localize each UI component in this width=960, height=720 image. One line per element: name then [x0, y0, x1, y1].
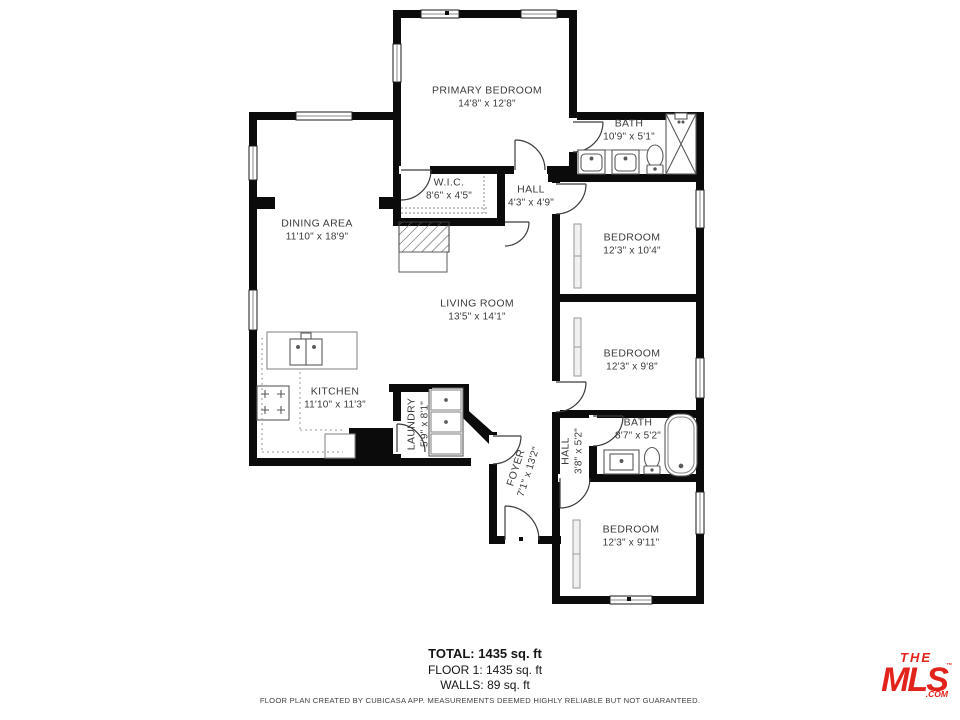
- bathtub-icon: [665, 414, 697, 476]
- room-label-bedroom-3: BEDROOM 12'3" x 9'11": [603, 524, 660, 551]
- total-area: TOTAL: 1435 sq. ft: [428, 646, 542, 663]
- room-dims: 8'6" x 4'5": [426, 191, 472, 204]
- trademark-symbol: ™: [946, 663, 952, 669]
- room-label-living-room: LIVING ROOM 13'5" x 14'1": [440, 298, 514, 325]
- room-name: DINING AREA: [281, 218, 353, 231]
- toilet-icon: [644, 448, 660, 475]
- room-label-bath-1: BATH 10'9" x 5'1": [603, 118, 655, 145]
- room-name: BATH: [615, 417, 661, 430]
- logo-mls-text: MLS ™: [874, 663, 954, 697]
- counter: [325, 434, 355, 458]
- room-name: BEDROOM: [603, 524, 660, 537]
- shower-icon: [666, 113, 696, 174]
- room-dims: 4'3" x 4'9": [508, 198, 554, 211]
- room-name: HALL: [508, 184, 554, 197]
- room-label-bath-2: BATH 8'7" x 5'2": [615, 417, 661, 444]
- sliding-closet-door-icon: [574, 224, 581, 288]
- door-arc: [505, 506, 539, 540]
- room-name: LIVING ROOM: [440, 298, 514, 311]
- room-label-wic: W.I.C. 8'6" x 4'5": [426, 177, 472, 204]
- laundry-fixtures: [429, 388, 463, 456]
- room-name: HALL: [560, 428, 573, 474]
- room-dims: 12'3" x 9'11": [603, 538, 660, 551]
- room-dims: 5'9" x 8'1": [420, 398, 433, 450]
- sink-icon: [604, 450, 639, 474]
- door-arc: [505, 222, 529, 246]
- washer-dryer-icon: [429, 388, 463, 456]
- themls-logo: THE MLS ™ .COM: [874, 651, 954, 699]
- sink-icon: [578, 150, 605, 174]
- sink-icon: [612, 150, 639, 174]
- room-label-bedroom-2: BEDROOM 12'3" x 9'8": [604, 348, 661, 375]
- room-dims: 13'5" x 14'1": [440, 312, 514, 325]
- room-label-hall-1: HALL 4'3" x 4'9": [508, 184, 554, 211]
- window: [249, 290, 257, 330]
- room-label-bedroom-1: BEDROOM 12'3" x 10'4": [603, 232, 660, 259]
- window: [696, 190, 704, 228]
- room-label-primary-bedroom: PRIMARY BEDROOM 14'8" x 12'8": [432, 85, 542, 112]
- window: [249, 146, 257, 180]
- room-dims: 11'10" x 18'9": [281, 232, 353, 245]
- sliding-closet-door-icon: [574, 318, 581, 376]
- room-dims: 12'3" x 10'4": [603, 246, 660, 259]
- room-dims: 12'3" x 9'8": [604, 362, 661, 375]
- window: [521, 10, 557, 18]
- room-dims: 3'8" x 5'2": [574, 428, 587, 474]
- window: [696, 358, 704, 398]
- area-summary: TOTAL: 1435 sq. ft FLOOR 1: 1435 sq. ft …: [428, 646, 542, 693]
- room-label-hall-2: HALL 3'8" x 5'2": [560, 428, 587, 474]
- room-name: BEDROOM: [603, 232, 660, 245]
- room-name: LAUNDRY: [406, 398, 419, 450]
- window: [393, 44, 401, 82]
- floor1-area: FLOOR 1: 1435 sq. ft: [428, 663, 542, 678]
- room-dims: 8'7" x 5'2": [615, 431, 661, 444]
- utility-hatch: [399, 222, 449, 252]
- walls-area: WALLS: 89 sq. ft: [428, 678, 542, 693]
- logo-mls-word: MLS: [881, 661, 947, 699]
- disclaimer-text: FLOOR PLAN CREATED BY CUBICASA APP. MEAS…: [260, 696, 700, 705]
- door-arc: [573, 122, 603, 152]
- room-dims: 11'10" x 11'3": [304, 400, 366, 413]
- room-dims: 10'9" x 5'1": [603, 132, 655, 145]
- window: [696, 492, 704, 534]
- room-dims: 14'8" x 12'8": [432, 99, 542, 112]
- room-name: KITCHEN: [304, 386, 366, 399]
- floor-plan-page: PRIMARY BEDROOM 14'8" x 12'8" BATH 10'9"…: [0, 0, 960, 720]
- room-name: BEDROOM: [604, 348, 661, 361]
- room-name: W.I.C.: [426, 177, 472, 190]
- door-arc: [556, 184, 586, 214]
- room-label-laundry: LAUNDRY 5'9" x 8'1": [406, 398, 433, 450]
- sliding-closet-door-icon: [573, 520, 580, 588]
- utility-box: [399, 252, 447, 272]
- door-arc: [515, 140, 545, 170]
- window: [296, 112, 352, 120]
- door-arc: [560, 478, 590, 508]
- room-label-dining-area: DINING AREA 11'10" x 18'9": [281, 218, 353, 245]
- room-label-kitchen: KITCHEN 11'10" x 11'3": [304, 386, 366, 413]
- door-arc: [556, 382, 586, 412]
- room-name: BATH: [603, 118, 655, 131]
- window: [421, 10, 459, 18]
- toilet-icon: [647, 145, 663, 174]
- room-name: PRIMARY BEDROOM: [432, 85, 542, 98]
